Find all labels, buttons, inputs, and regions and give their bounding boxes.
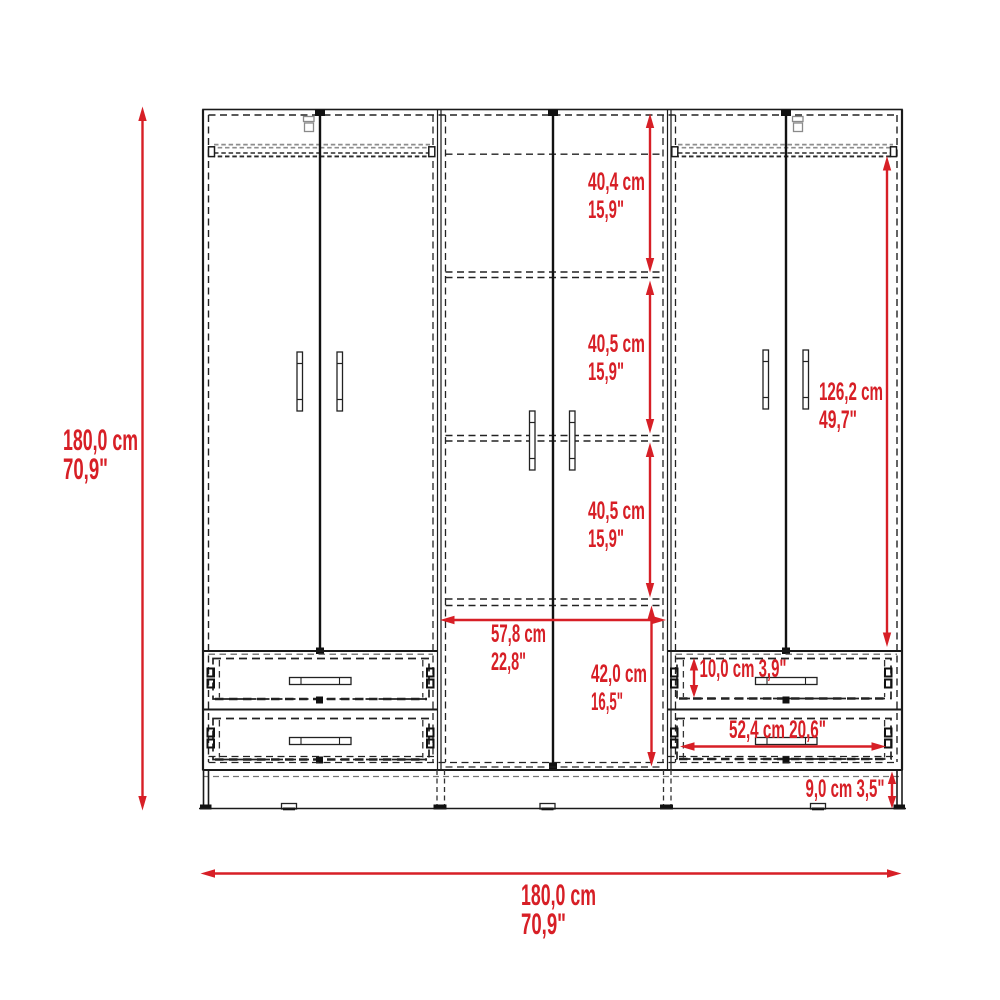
svg-text:40,5 cm: 40,5 cm bbox=[588, 497, 645, 525]
svg-text:40,5 cm: 40,5 cm bbox=[588, 330, 645, 358]
svg-text:10,0 cm 3,9": 10,0 cm 3,9" bbox=[700, 655, 787, 683]
svg-text:15,9": 15,9" bbox=[588, 358, 624, 386]
svg-text:15,9": 15,9" bbox=[588, 196, 624, 224]
svg-text:70,9": 70,9" bbox=[63, 453, 108, 486]
svg-text:52,4 cm 20,6": 52,4 cm 20,6" bbox=[729, 716, 826, 744]
svg-text:126,2 cm: 126,2 cm bbox=[819, 378, 883, 406]
svg-text:40,4 cm: 40,4 cm bbox=[588, 168, 645, 196]
svg-text:22,8": 22,8" bbox=[491, 648, 526, 676]
svg-text:9,0 cm 3,5": 9,0 cm 3,5" bbox=[806, 775, 885, 803]
svg-text:16,5": 16,5" bbox=[591, 688, 623, 716]
svg-text:57,8 cm: 57,8 cm bbox=[491, 620, 546, 648]
svg-text:49,7": 49,7" bbox=[819, 406, 857, 434]
svg-text:70,9": 70,9" bbox=[521, 908, 566, 941]
svg-text:15,9": 15,9" bbox=[588, 525, 624, 553]
svg-text:42,0 cm: 42,0 cm bbox=[591, 660, 647, 688]
